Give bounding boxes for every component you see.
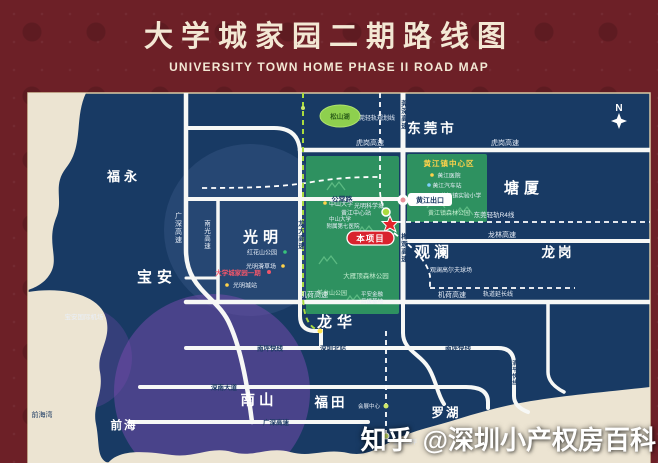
poi-label-science-city: 光明科学城 [354,202,384,210]
poi-label-huangjiang-forest-park: 黄江镇森林公园 [428,209,470,217]
road-map: 虎岗高速 虎岗高速 广深高速 南光高速 龙大高速 莞深高速 梅观高速 公常路 龙… [0,0,658,463]
convention-center-station-dot [384,404,389,409]
poi-label-huangjiang-bus-station: 黄江汽车站 [433,182,462,190]
road-label-nanping-1: 南坪快线 [257,344,284,353]
region-label-luohu: 罗湖 [431,405,460,420]
region-label-longhua: 龙华 [316,313,357,331]
attraction-dot-icon [281,264,285,268]
huangjiang-exit-label: 黄江出口 [416,196,444,205]
road-label-longlin: 龙林高速 [488,230,516,239]
region-label-dongguan: 东莞市 [407,120,457,136]
rail-label-extension: 轨道延长线 [483,290,513,298]
station-dot-icon [225,283,229,287]
zone-title-huangjiang: 黄江镇中心区 [424,158,475,168]
poi-label-songshan-lake: 松山湖 [330,112,350,121]
region-label-nanshan: 南山 [241,391,278,409]
watermark-account: @深圳小产权房百科 [423,425,656,455]
station-label-guangming-city: 光明城站 [233,282,257,290]
region-label-fuyong: 福永 [106,169,141,184]
road-label-shennan: 深南大道 [211,383,238,392]
road-label-hugang-2: 虎岗高速 [491,138,519,147]
station-label-shenzhen-north: 深圳北站 [320,344,347,353]
university-dot-icon [323,201,327,205]
rail-label-r4: 东莞轻轨R4线 [474,210,515,219]
road-label-nanping-2: 南坪快线 [445,344,472,353]
poi-label-univ-hospital-line2: 附属第七医院 [326,222,360,230]
poi-label-pingan-line1: 平安金融 [361,290,384,298]
region-label-longgang: 龙岗 [541,244,575,260]
road-label-hugang-1: 虎岗高速 [356,138,384,147]
hospital-dot-icon [430,173,434,177]
region-label-qianhai-bay: 前海湾 [32,410,53,419]
poi-label-univ-hospital-line1: 中山大学 [329,215,352,223]
compass-n-label: N [615,103,622,114]
station-label-convention-center: 会展中心 [358,402,381,410]
road-label-guangshen-vertical: 广深高速 [175,211,183,244]
poi-label-guanlan-golf: 观澜高尔夫球场 [430,266,472,274]
poi-label-phase1: 大学城家园一期 [215,268,261,277]
region-label-tangxia: 塘厦 [504,179,544,197]
huangjiang-exit-inner-dot [401,198,406,203]
zhihu-watermark: 知乎@深圳小产权房百科 [361,420,656,457]
station-label-huangjiang-center: 黄江中心站 [341,209,371,217]
poi-label-baoan-airport: 宝安国际机场 [65,312,105,321]
poi-label-huangjiang-hospital: 黄江医院 [437,172,460,180]
road-label-guangshen-bottom: 广深高速 [263,418,290,427]
poi-label-pingan-line2: 后援基地 [361,297,384,305]
metro-station-dot [301,106,305,110]
poi-label-zhongshan-university: 中山大学 [329,200,353,208]
watermark-brand: 知乎 [361,425,413,455]
region-label-guangming: 光明 [242,228,283,246]
poi-label-dayanding-park: 大雁顶森林公园 [343,271,389,280]
poi-label-honghuashan-park: 红花山公园 [247,249,277,257]
park-dot-icon [283,250,287,254]
project-label: 本项目 [356,234,385,244]
region-label-baoan: 宝安 [137,268,177,286]
poster-background: 大学城家园二期路线图 UNIVERSITY TOWN HOME PHASE II… [0,0,658,463]
region-label-qianhai: 前海 [111,418,138,432]
bus-station-dot-icon [427,183,431,187]
region-label-guanlan: 观澜 [415,243,453,261]
region-label-futian: 福田 [314,394,348,410]
road-label-jihe-2: 机荷高速 [438,290,466,299]
poi-label-yangtaishan-park: 羊台山公园 [317,289,347,297]
phase1-dot-icon [267,270,271,274]
